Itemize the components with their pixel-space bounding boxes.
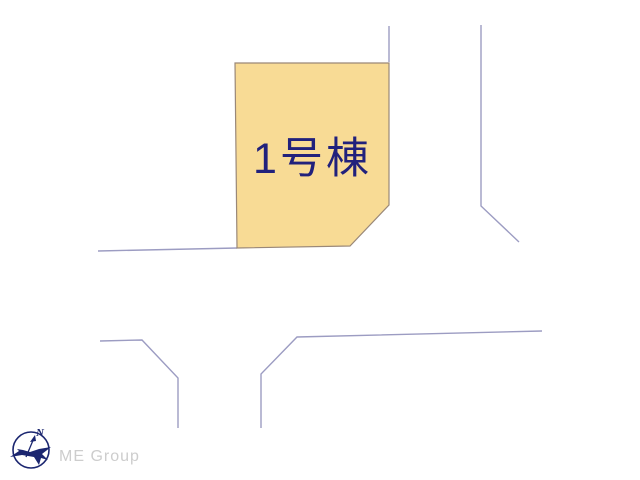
site-map-canvas (0, 0, 640, 480)
site-plan-map: 1号棟 N ME Group (0, 0, 640, 480)
compass-north-label: N (35, 427, 45, 439)
road-edge-bottom-right (261, 331, 542, 428)
road-edge-bottom-left (100, 340, 178, 428)
road-edge-middle-left (98, 248, 237, 251)
compass-north-icon: N (6, 424, 58, 476)
road-edge-top-right (481, 25, 519, 242)
company-watermark: ME Group (59, 448, 140, 466)
plot-1-polygon (235, 63, 389, 248)
